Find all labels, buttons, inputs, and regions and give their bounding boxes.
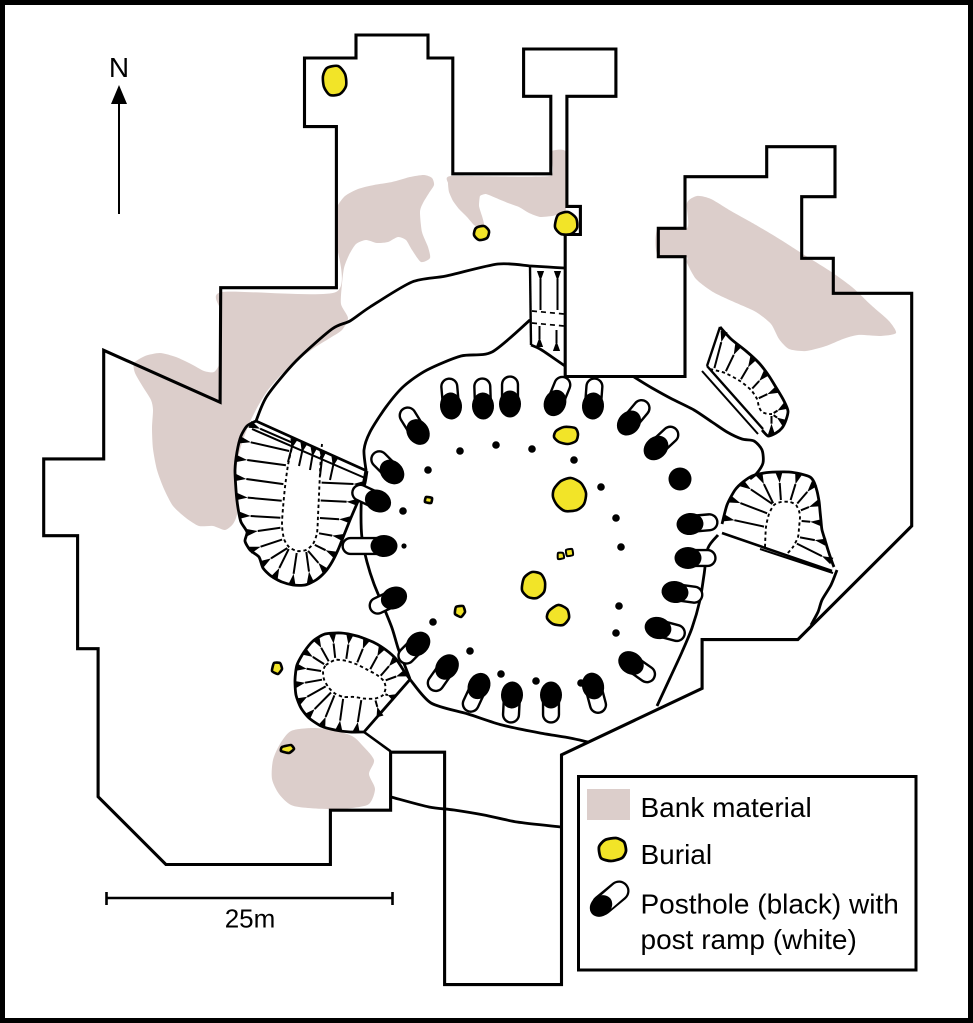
svg-text:Posthole (black) with: Posthole (black) with — [641, 889, 899, 920]
svg-text:Bank material: Bank material — [641, 792, 812, 823]
svg-text:post ramp (white): post ramp (white) — [641, 924, 857, 955]
svg-text:25m: 25m — [225, 904, 276, 934]
svg-text:Burial: Burial — [641, 839, 713, 870]
svg-text:N: N — [109, 52, 129, 83]
